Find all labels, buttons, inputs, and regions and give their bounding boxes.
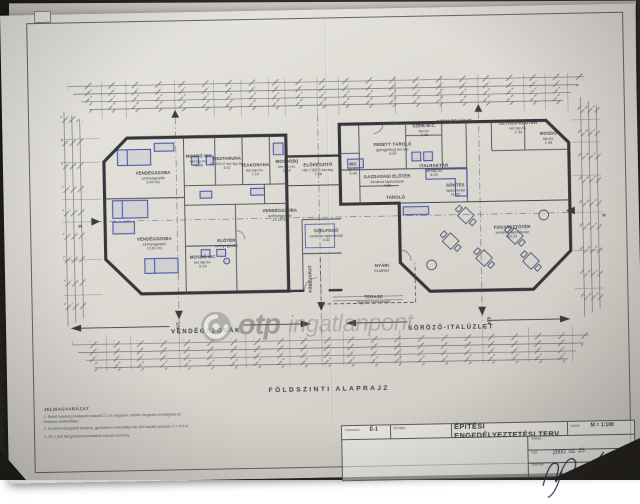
room-label: FŐBEJÁRAT bbox=[308, 265, 313, 292]
title-block-scale-cell: Lépték M = 1:100 bbox=[568, 421, 634, 435]
otp-logo-icon bbox=[200, 310, 233, 343]
room-label: TÁROLÓ bbox=[386, 196, 405, 201]
room-label: NYÁRIKIJÁRAT bbox=[374, 264, 390, 273]
room-label: WClap.bu.0.98 bbox=[347, 162, 359, 176]
photo-background: VENDÉGSZOBAszőnyegpadló9.44 m2MOSDÓ WCke… bbox=[0, 0, 640, 480]
room-label: SZÉLFOGÓkerámia lapburkolat4.62 bbox=[310, 229, 343, 243]
room-label: MOSDÓlap.bu.1.98 bbox=[540, 131, 557, 145]
axis-label: H bbox=[78, 224, 81, 229]
field-value: É-1 bbox=[369, 427, 378, 433]
room-label: SZEM.W.C.lap.bu.1.26 bbox=[412, 124, 436, 138]
scale-value: M = 1:100 bbox=[590, 422, 614, 428]
field-label: Lépték bbox=[570, 424, 580, 428]
room-label: VENDÉGSZOBAszőnyegpadló13.14 m2 bbox=[262, 208, 297, 222]
axis-label: K/1 bbox=[175, 322, 180, 329]
room-label: GAZD.BEJÁRAT bbox=[368, 122, 403, 127]
room-label: TISZTARUHATÁROLÓ ker.lap.bu.4.57 bbox=[210, 156, 244, 170]
room-label: ELŐTÉRszőnyegpadló bbox=[215, 239, 239, 249]
room-label: VENDÉGSZOBAszőnyegpadló13.61 m2 bbox=[137, 237, 172, 251]
legend-item: 3. HT-1 jelű fali gázbetonelemekből szer… bbox=[44, 432, 194, 440]
room-label: SÖNTÉSlapburkolat11.52 bbox=[446, 183, 465, 197]
legend-item: 2. Kívülről hőszigetelt kémény, gyorsbet… bbox=[44, 424, 194, 432]
room-label: MOSDÓ WCker.lap.bu.3.98 bbox=[186, 154, 212, 168]
title-block-number-cell: Törzsszám: É-1 bbox=[342, 425, 391, 439]
legend: JELMAGYARÁZAT 1. Belső helyiség elválasz… bbox=[44, 403, 230, 442]
watermark: otp ingatlanpont bbox=[200, 306, 413, 343]
axis-label: K/2 bbox=[486, 317, 491, 324]
title-block-plan-type-cell: Tervfajta: bbox=[391, 424, 452, 438]
room-label: MOSDÓ(k)ker.lap.bu.6.84 bbox=[275, 159, 298, 173]
room-label: ELŐKÉSZÍTŐHELYISÉG ker.lap.7.28 bbox=[302, 163, 334, 177]
room-label: FEDETT TÁROLÓ(göngyöleg) ker.lap.4.44 bbox=[374, 142, 412, 156]
field-label: Törzsszám: bbox=[344, 428, 361, 432]
floor-plan-drawing: VENDÉGSZOBAszőnyegpadló9.44 m2MOSDÓ WCke… bbox=[0, 4, 640, 484]
room-label: ÖLTÖZŐ-ELŐTÉRker.lap.bu.2.34 bbox=[499, 121, 538, 135]
paper-sheet: VENDÉGSZOBAszőnyegpadló9.44 m2MOSDÓ WCke… bbox=[0, 4, 640, 484]
watermark-brand: otp bbox=[238, 308, 281, 342]
room-label: ITALRAKTÁRker.lap.bu.8.42 bbox=[420, 164, 449, 178]
room-label: TEAKONYHAker.lap.bu.7.14 bbox=[241, 163, 270, 177]
room-label: MOSDÓ WCker.lap.bu.5.04 bbox=[190, 255, 216, 269]
room-label: SZEM.BEJÁRAT bbox=[437, 119, 472, 124]
legend-item: 1. Belső helyiség elválasztó falazott 2.… bbox=[44, 412, 194, 424]
room-label: VENDÉGSZOBAszőnyegpadló9.44 m2 bbox=[136, 171, 171, 185]
field-label: Tervfajta: bbox=[393, 426, 406, 430]
watermark-brand-suffix: ingatlanpont bbox=[288, 308, 413, 338]
room-label: TERASZfagyálló lapburkolat bbox=[357, 295, 390, 305]
room-label: FOGYASZTÓTÉRkerámia lapburkolat63.24 bbox=[494, 225, 531, 239]
axis-label: H bbox=[602, 213, 605, 218]
field-label: Aláírás: bbox=[531, 436, 542, 440]
room-label: GAZDASÁGI ELŐTÉRkerámia lapburkolat4.65 bbox=[364, 174, 411, 188]
